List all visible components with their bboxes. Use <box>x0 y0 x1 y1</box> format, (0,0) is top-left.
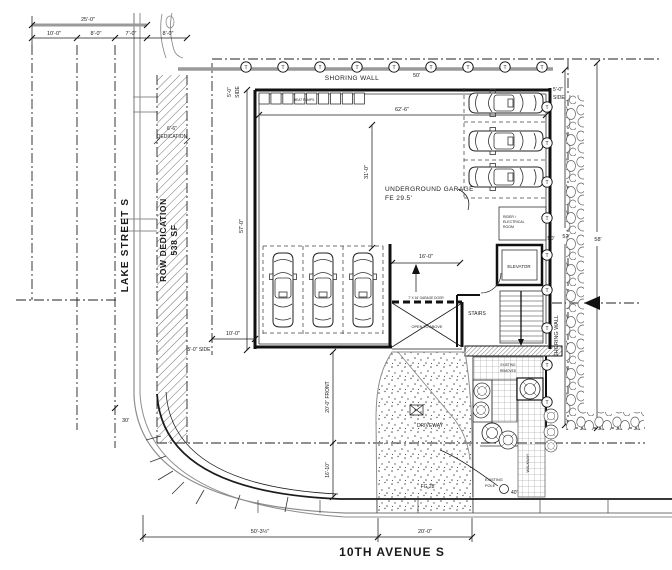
pole-dim: 40' <box>511 490 518 496</box>
svg-text:T: T <box>545 326 548 332</box>
svg-text:T: T <box>244 65 247 71</box>
dim-garage-depth: 57'-0" <box>239 219 245 233</box>
patio-note-2: REMOVED <box>500 369 517 373</box>
svg-text:T: T <box>540 65 543 71</box>
dedication-word: DEDICATION <box>157 134 188 140</box>
svg-text:T: T <box>545 253 548 259</box>
svg-text:T: T <box>503 65 506 71</box>
row-dedication-strip: ROW DEDICATION 538 SF 6'-6" DEDICATION <box>154 75 190 443</box>
label-shoring-right: SHORING WALL <box>554 315 560 357</box>
heat-pumps-label: HEAT PUMPS <box>294 98 314 102</box>
setback-nw-2: SIDE <box>235 86 241 98</box>
driveway: DRIVEWAY FG 28' <box>376 352 473 513</box>
site-plan-drawing: ROW DEDICATION 538 SF 6'-6" DEDICATION S… <box>0 0 672 570</box>
driveway-label: DRIVEWAY <box>417 423 444 429</box>
svg-text:T: T <box>545 400 548 406</box>
svg-text:T: T <box>429 65 432 71</box>
dim-top-4: 8'-0" <box>163 31 174 37</box>
svg-text:T: T <box>466 65 469 71</box>
garage-title: UNDERGROUND GARAGE <box>385 186 474 193</box>
dim-overall-top: 25'-0" <box>81 17 95 23</box>
dim-top-3: 7'-0" <box>126 31 137 37</box>
svg-text:T: T <box>281 65 284 71</box>
dim-east-3: 58' <box>594 237 601 243</box>
parking-stalls <box>263 88 546 334</box>
label-lake-street: LAKE STREET S <box>120 198 131 293</box>
shoring-wall-top: SHORING WALL 50' <box>178 69 553 82</box>
svg-text:T: T <box>545 105 548 111</box>
dim-south-2: 20'-0" <box>418 529 432 535</box>
curb-ramp-ticks <box>146 436 288 512</box>
dim-interior: 31'-0" <box>364 165 370 179</box>
dim-garage-width: 62'-6" <box>395 107 409 113</box>
svg-text:T: T <box>545 141 548 147</box>
row-dedication-label: ROW DEDICATION <box>158 198 168 282</box>
existing-pole-1: EXISTING <box>485 478 503 482</box>
walkway-label: WALKWAY <box>526 453 530 472</box>
core-rooms: RIDER / ELECTRICAL ROOM ELEVATOR STAIRS <box>457 207 546 347</box>
dim-top-2: 8'-0" <box>91 31 102 37</box>
site-plan-page: ROW DEDICATION 538 SF 6'-6" DEDICATION S… <box>0 0 672 570</box>
garage-door-label: 7' X 16' GARAGE DOOR <box>408 296 444 300</box>
open-above-label: OPEN TO ABOVE <box>412 325 443 329</box>
label-10th-avenue: 10TH AVENUE S <box>339 545 445 559</box>
benchmark-marker <box>584 296 600 310</box>
curb-radius: 30' <box>122 418 129 424</box>
setback-ne-1: 5'-0" <box>553 87 563 93</box>
dim-front-1: 20'-0" FRONT <box>325 381 331 412</box>
setback-sw: 5'-0" SIDE <box>187 347 211 353</box>
dim-west-gap: 10'-0" <box>226 331 240 337</box>
dedication-width: 6'-6" <box>167 126 177 132</box>
dim-south-1: 50'-3½" <box>251 528 270 535</box>
rider-room-1: RIDER / <box>503 215 516 219</box>
shoring-length: 50' <box>413 73 420 79</box>
svg-text:T: T <box>318 65 321 71</box>
dim-top-1: 10'-0" <box>47 31 61 37</box>
svg-text:T: T <box>355 65 358 71</box>
row-area-label: 538 SF <box>169 224 179 255</box>
svg-text:T: T <box>545 180 548 186</box>
stairs-label: STAIRS <box>468 311 486 317</box>
setback-ne-2: SIDE <box>553 95 565 101</box>
patio-note-1: EXISTING <box>501 363 516 367</box>
svg-text:T: T <box>545 216 548 222</box>
svg-text:T: T <box>545 363 548 369</box>
driveway-grade: FG 28' <box>421 484 436 490</box>
dim-door-width: 16'-0" <box>419 254 433 260</box>
existing-pole-2: POLE <box>485 484 496 488</box>
svg-text:T: T <box>392 65 395 71</box>
garage-elevation: FE 29.5' <box>385 195 412 202</box>
property-lines <box>16 45 660 448</box>
shoring-wall-label: SHORING WALL <box>325 75 379 82</box>
elevator-label: ELEVATOR <box>507 264 531 269</box>
rider-room-2: ELECTRICAL <box>503 220 525 224</box>
dim-front-2: 16'-10" <box>325 462 331 478</box>
svg-text:T: T <box>545 288 548 294</box>
setback-nw-1: 5'-0" <box>227 87 233 97</box>
rider-room-3: ROOM <box>503 225 514 229</box>
rockery-wall <box>566 95 644 430</box>
